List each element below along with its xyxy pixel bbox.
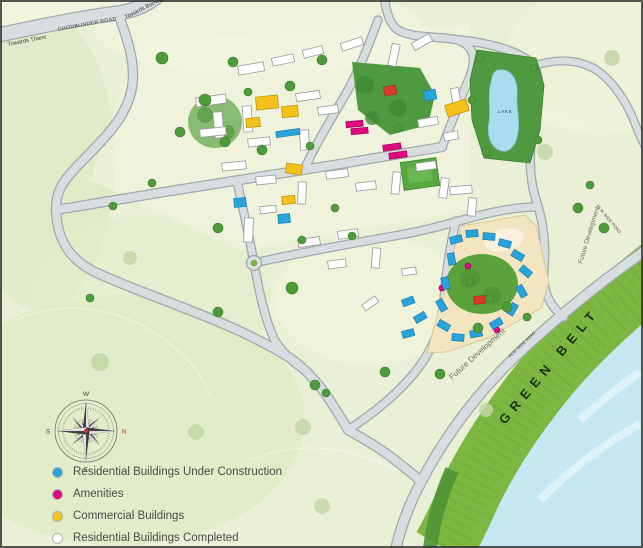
building-completed: [467, 198, 477, 217]
building-under-construction: [466, 229, 479, 237]
building-commercial: [246, 117, 261, 127]
building-red: [474, 295, 486, 304]
legend-dot-completed: [52, 533, 63, 544]
building-amenity: [346, 120, 363, 127]
legend-item-amenities: Amenities: [52, 483, 282, 505]
building-under-construction: [483, 232, 496, 240]
legend-item-under-construction: Residential Buildings Under Construction: [52, 461, 282, 483]
compass-north: N: [122, 428, 127, 435]
label-lake: LAKE: [498, 109, 512, 115]
site-plan-screenshot: Towards Thane GHODBUNDER ROAD Towards Bo…: [0, 0, 643, 548]
legend-label-completed: Residential Buildings Completed: [73, 532, 239, 544]
building-under-construction: [278, 213, 291, 223]
legend-label-amenities: Amenities: [73, 488, 124, 500]
legend-dot-amenities: [52, 489, 63, 500]
building-red: [383, 85, 396, 96]
legend-item-commercial: Commercial Buildings: [52, 505, 282, 527]
building-amenity: [351, 127, 368, 134]
legend-item-completed: Residential Buildings Completed: [52, 527, 282, 548]
building-completed: [450, 185, 473, 195]
building-under-construction: [452, 333, 465, 341]
building-amenity: [465, 263, 471, 269]
building-under-construction: [234, 197, 247, 207]
legend-dot-under-construction: [52, 467, 63, 478]
building-commercial: [282, 105, 299, 118]
building-commercial: [282, 195, 296, 204]
compass-south: S: [46, 428, 51, 435]
building-completed: [260, 205, 277, 214]
building-commercial: [285, 163, 302, 175]
building-completed: [244, 218, 254, 242]
building-completed: [371, 248, 381, 269]
legend: Residential Buildings Under Construction…: [52, 461, 282, 548]
label-future-development-east: Future Development: [577, 206, 601, 265]
compass-west: W: [83, 391, 90, 398]
legend-dot-commercial: [52, 511, 63, 522]
building-completed: [402, 267, 417, 276]
building-completed: [298, 182, 307, 204]
building-completed: [256, 175, 277, 185]
legend-label-under-construction: Residential Buildings Under Construction: [73, 466, 282, 478]
legend-label-commercial: Commercial Buildings: [73, 510, 184, 522]
building-commercial: [255, 95, 278, 110]
building-under-construction: [423, 89, 437, 101]
